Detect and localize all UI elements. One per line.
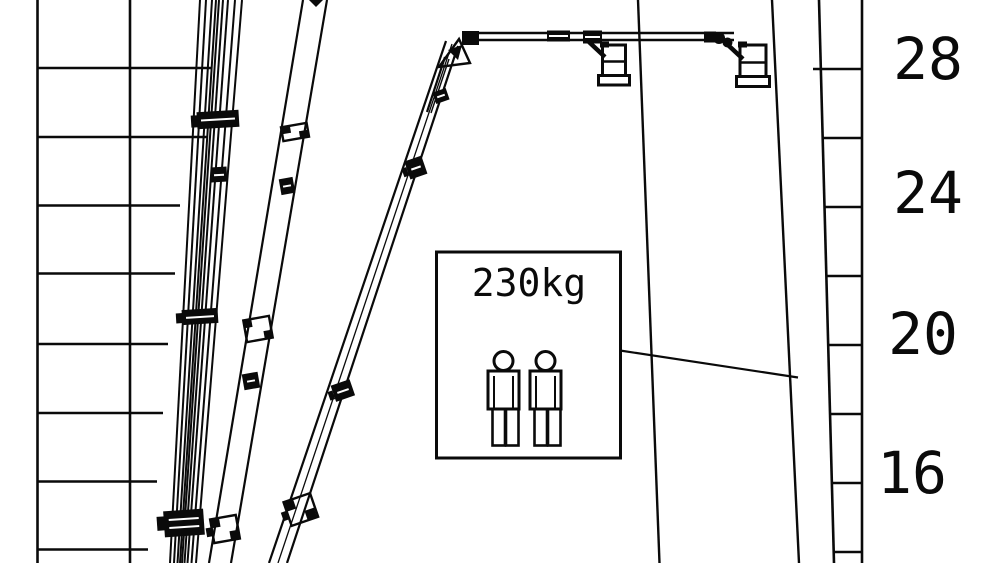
boom-collar [204, 515, 240, 544]
height-scale-ticks [813, 69, 862, 552]
envelope-line-outer [772, 0, 799, 563]
boom-position-extended [269, 39, 470, 563]
envelope-line-inner [638, 0, 660, 563]
jib-bracket [583, 31, 602, 44]
boom-collar [156, 509, 205, 538]
jib-sleeve [547, 31, 570, 42]
platform-basket-right [737, 42, 770, 87]
boom-collar [400, 156, 428, 181]
boom-collar [191, 110, 240, 130]
person-icon [530, 352, 561, 446]
leader-line [620, 351, 798, 378]
boom-position-raised [156, 0, 242, 563]
load-capacity-box: 230kg [437, 252, 621, 458]
boom-bracket [279, 177, 296, 195]
height-scale: 28 24 20 16 [813, 0, 963, 563]
boom-bracket [211, 167, 228, 183]
boom-collar [176, 308, 219, 326]
load-capacity-label: 230kg [472, 261, 586, 305]
scale-label-24: 24 [893, 159, 963, 227]
boom-collar [278, 493, 318, 528]
person-icon [488, 352, 519, 446]
boom-bracket [242, 372, 261, 391]
diagram-canvas: 230kg [0, 0, 1002, 563]
platform-basket-left [599, 42, 630, 86]
scale-label-16: 16 [877, 439, 947, 507]
scale-label-20: 20 [888, 300, 958, 368]
scale-label-28: 28 [893, 25, 963, 93]
